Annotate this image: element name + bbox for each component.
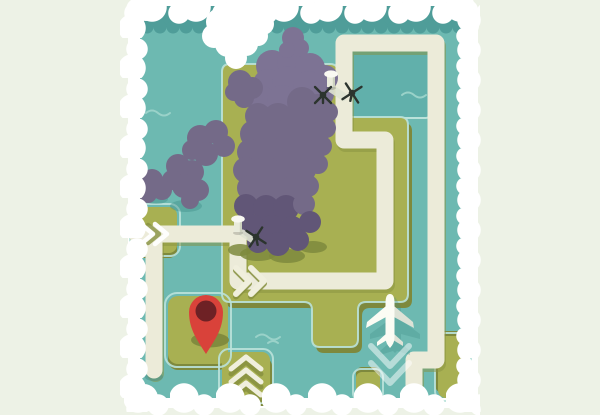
small-patch	[356, 372, 380, 398]
blob	[316, 118, 336, 138]
blob	[388, 21, 401, 34]
lagoon	[347, 48, 430, 118]
blob	[202, 24, 226, 48]
blob	[459, 375, 477, 393]
blob	[414, 21, 427, 34]
blob	[287, 229, 309, 251]
blob	[225, 83, 243, 101]
blob	[180, 21, 193, 34]
blob	[401, 21, 414, 34]
blob	[124, 382, 144, 402]
blob	[323, 21, 336, 34]
blob	[181, 191, 199, 209]
blob	[279, 42, 295, 58]
blob	[310, 21, 323, 34]
blob	[427, 21, 440, 34]
blob	[266, 232, 290, 256]
blob	[362, 21, 375, 34]
blob	[375, 21, 388, 34]
blob	[308, 154, 328, 174]
blob	[299, 211, 321, 233]
blob	[139, 185, 157, 203]
blob	[349, 21, 362, 34]
blob	[312, 136, 332, 156]
map-canvas	[0, 0, 600, 415]
blob	[461, 17, 479, 35]
blob	[124, 12, 144, 32]
blob	[336, 21, 349, 34]
blob	[440, 21, 453, 34]
blob	[248, 26, 268, 46]
map-illustration	[0, 0, 600, 415]
blob	[154, 21, 167, 34]
blob	[167, 21, 180, 34]
blob	[225, 47, 247, 69]
deep-water-scallops	[141, 21, 466, 34]
